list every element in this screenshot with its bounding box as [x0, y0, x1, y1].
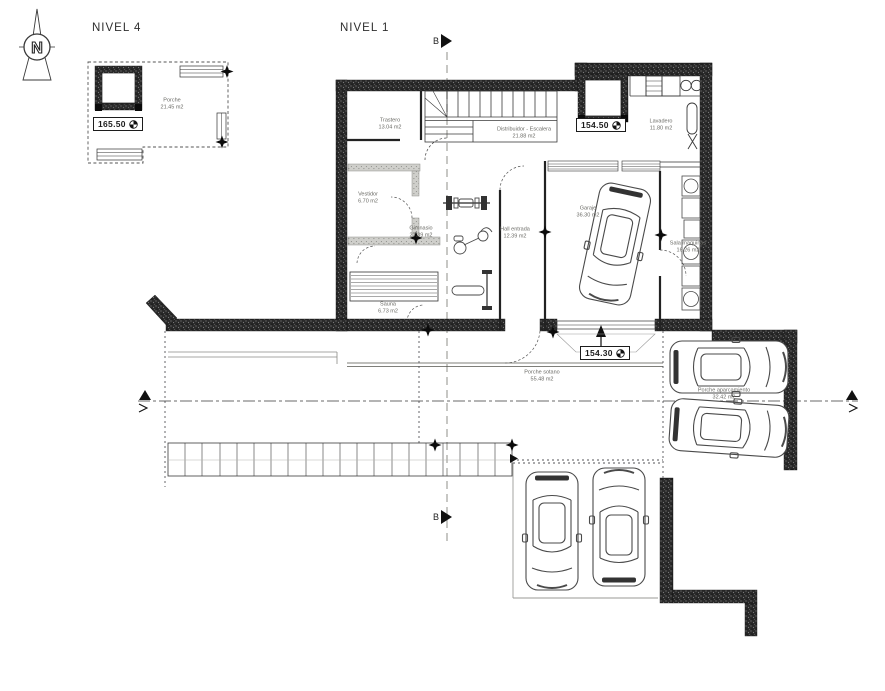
room-label-sauna: Sauna6.73 m2 [378, 302, 398, 315]
level-value: 165.50 [98, 119, 126, 129]
room-label-porche-n4: Porche21.45 m2 [161, 98, 184, 111]
room-label-porche-sotano: Porche sotano55.48 m2 [524, 370, 559, 383]
level-value: 154.50 [581, 120, 609, 130]
section-b-arrow-icon [441, 509, 453, 525]
section-b-marker-top: B [433, 33, 453, 49]
nivel4-stair-shaft [95, 66, 142, 111]
room-label-gimnasio: Gimnasio27.39 m2 [409, 226, 432, 239]
room-label-distribuidor: Distribuidor - Escalera21.88 m2 [497, 127, 551, 140]
laundry-sink-icon [681, 80, 691, 90]
car-icon-parking-3 [523, 472, 582, 590]
room-label-lavadero: Lavadero11.80 m2 [650, 119, 673, 132]
section-a-arrow-left [139, 390, 151, 400]
section-b-arrow-icon [441, 33, 453, 49]
room-label-vestidor: Vestidor6.70 m2 [358, 192, 378, 205]
ironing-board-icon [687, 103, 697, 149]
level-symbol-icon [129, 120, 138, 129]
boundary-dotted-lines [165, 331, 663, 598]
laundry-counter [630, 76, 702, 96]
elevator-shaft [578, 74, 628, 122]
title-nivel1: NIVEL 1 [340, 22, 389, 34]
room-label-trastero: Trastero13.04 m2 [379, 118, 402, 131]
level-marker-porche-sotano: 154.30 [580, 346, 630, 360]
car-icon-garage [574, 180, 656, 308]
plan-linework: N [0, 0, 885, 691]
room-label-porche-aparcamiento: Porche aparcamiento32.42 m2 [698, 388, 750, 401]
floor-plan-canvas: N [0, 0, 885, 691]
level-marker-distribuidor: 154.50 [576, 118, 626, 132]
level-symbol-icon [612, 121, 621, 130]
paved-strip [168, 443, 518, 476]
level-symbol-icon [616, 349, 625, 358]
exercise-bike-icon [454, 228, 492, 254]
door-arc-hall [500, 166, 524, 190]
section-b-marker-bottom: B [433, 509, 453, 525]
garage [557, 180, 656, 352]
section-b-label: B [433, 512, 439, 522]
north-letter: N [31, 40, 43, 57]
door-arc-trastero [425, 138, 447, 160]
car-icon-parking-2 [668, 394, 790, 461]
room-label-garaje: Garaje36.30 m2 [577, 206, 600, 219]
sauna-benches [350, 272, 438, 322]
section-a-arrow-right [846, 390, 858, 400]
bench-press-icon [443, 196, 490, 210]
door-arc-gym [357, 246, 375, 263]
door-arc-entry [505, 331, 540, 363]
room-label-hall: Hall entrada12.39 m2 [500, 227, 530, 240]
room-label-sala-maquinas: Sala maquinas16.26 m2 [670, 241, 706, 254]
north-compass-icon: N [19, 9, 55, 80]
title-nivel4: NIVEL 4 [92, 22, 141, 34]
level-value: 154.30 [585, 348, 613, 358]
level-marker-nivel4: 165.50 [93, 117, 143, 131]
gym-equipment-icons [443, 196, 492, 310]
nivel4-plan [88, 62, 234, 163]
section-b-label: B [433, 36, 439, 46]
door-arc-vestidor [391, 197, 412, 218]
parking-cars [523, 338, 790, 591]
direction-arrow-icon [510, 454, 518, 463]
weight-rack-icon [452, 270, 492, 310]
car-icon-parking-4 [590, 468, 649, 586]
vestidor-walls [348, 164, 440, 263]
stairs [425, 91, 557, 160]
